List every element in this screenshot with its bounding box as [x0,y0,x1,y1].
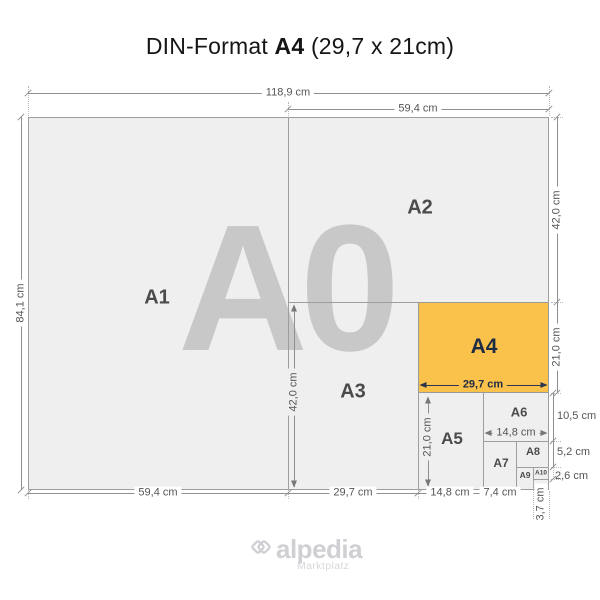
dim-total-height: 84,1 cm [15,279,28,326]
dim-a5-width: 14,8 cm [426,487,473,500]
label-a5: A5 [441,429,463,449]
dim-a2-width: 59,4 cm [394,103,441,116]
divider-a10-bottom [533,479,549,480]
dim-line-a6-height [553,393,554,441]
title-format-highlight: A4 [275,33,305,59]
arrow-up-icon [291,305,297,312]
label-a3: A3 [340,381,366,404]
dim-a3-width: 29,7 cm [329,487,376,500]
dim-line-a8-height [553,441,554,467]
arrow-down-icon [425,480,431,487]
dim-a9-width: 3,7 cm [535,483,548,524]
divider-a1-a2 [288,117,289,490]
dim-a7-width: 7,4 cm [479,487,520,500]
dim-a6-width: 14,8 cm [492,427,539,440]
dim-a6-height: 10,5 cm [557,410,596,422]
tick-mark [17,486,24,493]
title-prefix: DIN-Format [146,33,275,59]
alpedia-logo-icon [250,537,275,559]
label-a10: A10 [535,470,547,477]
arrow-left-icon [420,382,427,388]
arrow-right-icon [541,382,548,388]
dim-a4-height: 21,0 cm [551,323,564,370]
watermark-a0: A0 [178,199,392,379]
divider-a7-a8 [516,441,517,490]
label-a7: A7 [493,456,508,470]
dim-a3-height: 42,0 cm [288,368,301,415]
dim-total-width: 118,9 cm [262,87,314,100]
title-size: (29,7 x 21cm) [304,33,454,59]
label-a4: A4 [471,335,498,359]
page-title: DIN-Format A4 (29,7 x 21cm) [0,33,600,60]
dim-a5-height: 21,0 cm [422,413,435,460]
extension-line [549,491,550,519]
label-a1: A1 [144,287,170,310]
label-a8: A8 [526,446,540,458]
dim-a4-width: 29,7 cm [459,379,507,392]
dim-a2-height: 42,0 cm [551,186,564,233]
arrow-down-icon [291,481,297,488]
label-a9: A9 [520,470,531,480]
label-a6: A6 [511,405,528,420]
logo-tagline: Marktplatz [297,560,349,572]
arrow-up-icon [425,397,431,404]
label-a2: A2 [407,197,433,220]
arrow-left-icon [485,430,492,436]
dim-a10-height: 2,6 cm [555,470,588,482]
dim-a8-height: 5,2 cm [557,446,590,458]
din-format-infographic: DIN-Format A4 (29,7 x 21cm) A0 A1 A2 A3 … [0,0,600,600]
dim-a1-width: 59,4 cm [134,487,181,500]
arrow-right-icon [541,430,548,436]
